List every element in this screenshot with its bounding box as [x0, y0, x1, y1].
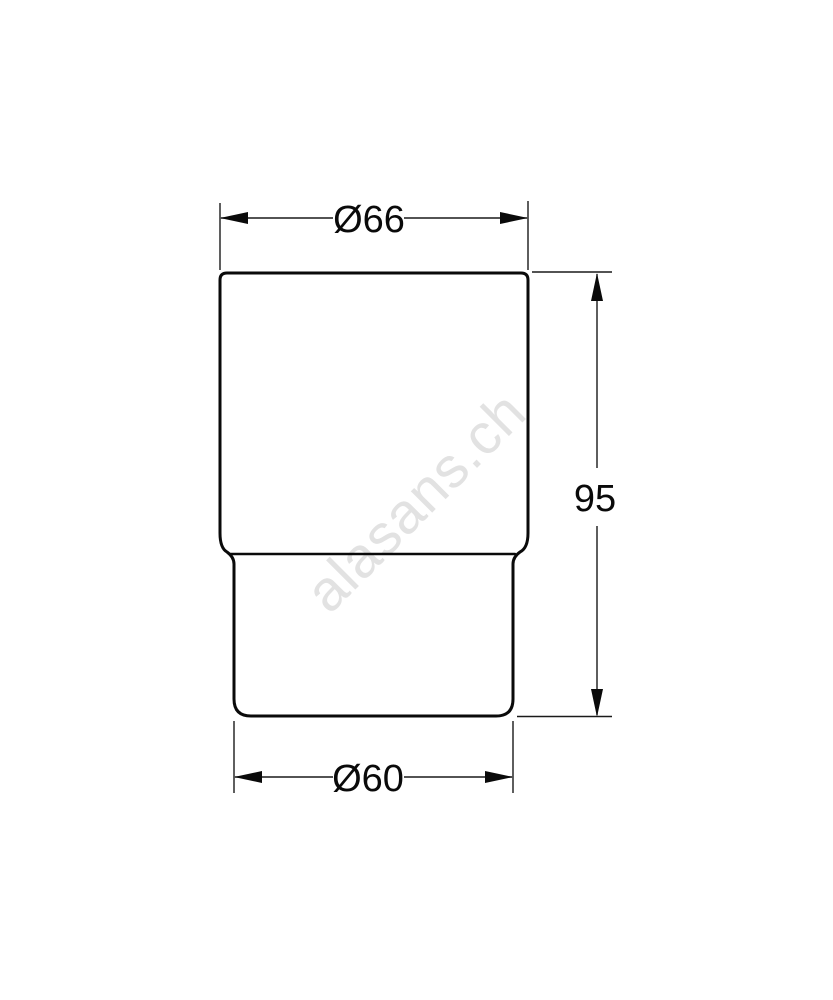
- glass-outline: [220, 273, 528, 716]
- arrowhead-down-icon: [591, 689, 603, 717]
- arrowhead-right-icon: [485, 771, 513, 783]
- arrowhead-up-icon: [591, 273, 603, 301]
- dimension-top-diameter: Ø66: [220, 199, 528, 270]
- arrowhead-left-icon: [220, 212, 248, 224]
- dimension-bottom-diameter: Ø60: [234, 721, 513, 800]
- arrowhead-left-icon: [234, 771, 262, 783]
- dimension-label-top-diameter: Ø66: [333, 199, 405, 241]
- technical-drawing-page: alasans.ch Ø66 95: [0, 0, 833, 1000]
- drawing-svg: Ø66 95 Ø60: [0, 0, 833, 1000]
- dimension-label-bottom-diameter: Ø60: [332, 758, 404, 800]
- arrowhead-right-icon: [500, 212, 528, 224]
- dimension-height: 95: [517, 272, 616, 717]
- dimension-label-height: 95: [574, 478, 616, 520]
- glass-body-path: [220, 273, 528, 716]
